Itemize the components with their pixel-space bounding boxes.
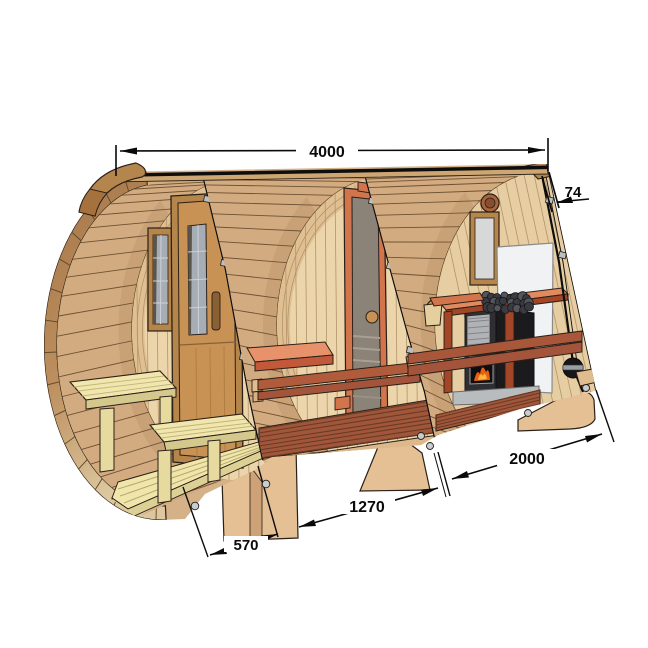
svg-text:74: 74 (565, 184, 582, 201)
svg-text:570: 570 (233, 537, 258, 554)
svg-text:1270: 1270 (349, 499, 385, 516)
svg-text:2000: 2000 (509, 451, 545, 468)
svg-text:4000: 4000 (309, 144, 345, 161)
